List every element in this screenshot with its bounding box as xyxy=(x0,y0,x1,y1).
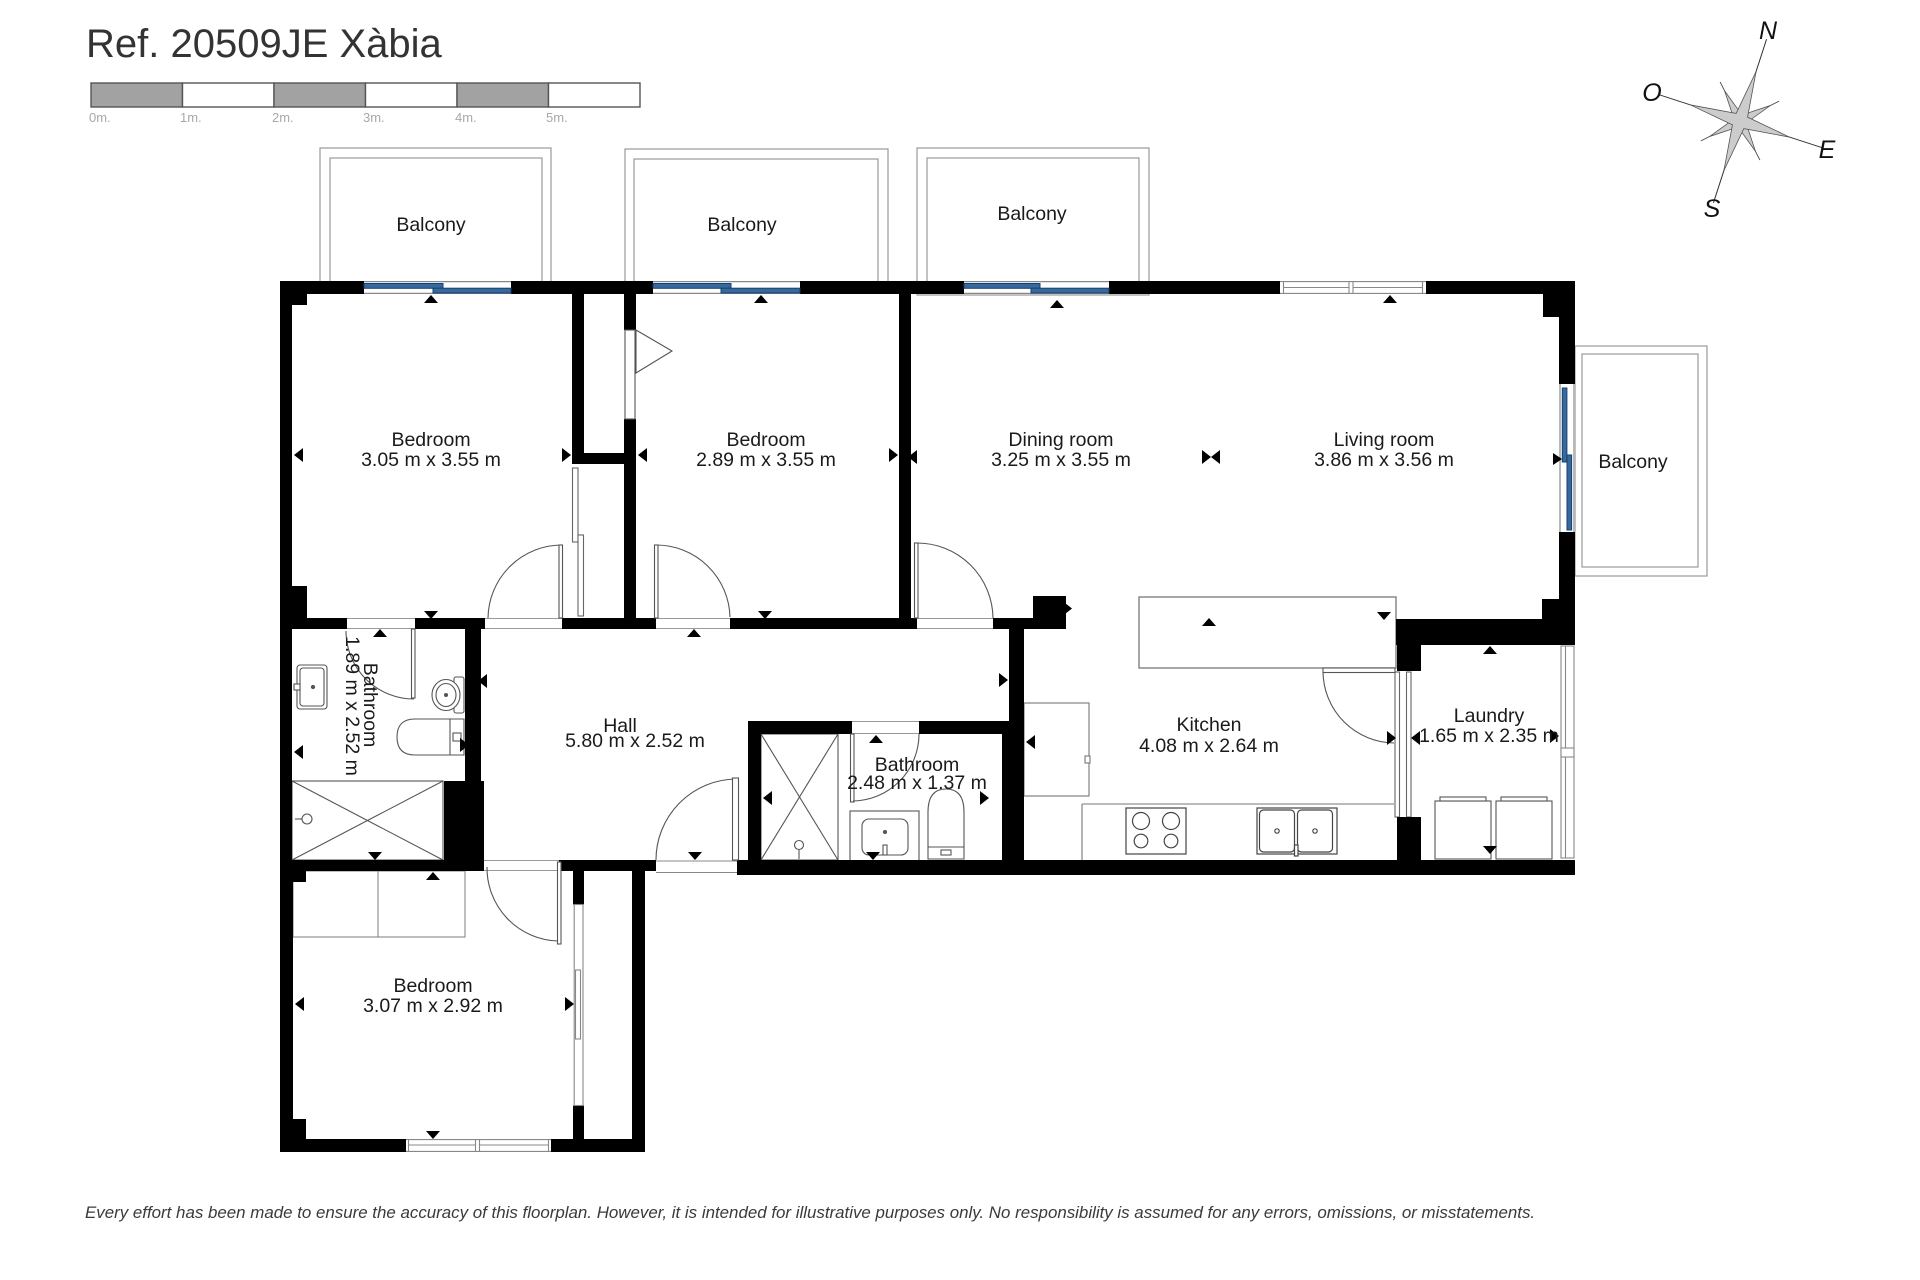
svg-text:E: E xyxy=(1819,136,1836,164)
svg-text:S: S xyxy=(1704,195,1721,223)
svg-text:Bedroom: Bedroom xyxy=(393,975,472,997)
svg-text:Bedroom: Bedroom xyxy=(726,429,805,451)
svg-text:Living room: Living room xyxy=(1334,429,1435,451)
svg-text:O: O xyxy=(1642,79,1661,107)
svg-text:3.86 m x 3.56 m: 3.86 m x 3.56 m xyxy=(1314,449,1454,471)
svg-text:1.89 m x 2.52 m: 1.89 m x 2.52 m xyxy=(341,636,363,776)
svg-text:1m.: 1m. xyxy=(180,110,202,125)
svg-text:N: N xyxy=(1759,17,1778,45)
svg-text:3.25 m x 3.55 m: 3.25 m x 3.55 m xyxy=(991,449,1131,471)
svg-text:5m.: 5m. xyxy=(546,110,568,125)
svg-text:2.89 m x 3.55 m: 2.89 m x 3.55 m xyxy=(696,449,836,471)
svg-text:5.80 m x 2.52 m: 5.80 m x 2.52 m xyxy=(565,730,705,752)
svg-text:Balcony: Balcony xyxy=(1598,451,1668,473)
svg-text:3m.: 3m. xyxy=(363,110,385,125)
svg-text:2m.: 2m. xyxy=(272,110,294,125)
svg-text:2.48 m x 1.37 m: 2.48 m x 1.37 m xyxy=(847,772,987,794)
svg-text:Ref. 20509JE Xàbia: Ref. 20509JE Xàbia xyxy=(86,22,443,66)
svg-text:Every effort has been made to: Every effort has been made to ensure the… xyxy=(85,1203,1535,1222)
svg-text:Balcony: Balcony xyxy=(997,203,1067,225)
svg-text:Balcony: Balcony xyxy=(707,214,777,236)
svg-text:Balcony: Balcony xyxy=(396,214,466,236)
svg-text:4m.: 4m. xyxy=(455,110,477,125)
svg-text:Laundry: Laundry xyxy=(1454,705,1525,727)
svg-text:3.05 m x 3.55 m: 3.05 m x 3.55 m xyxy=(361,449,501,471)
svg-text:Dining room: Dining room xyxy=(1008,429,1113,451)
svg-text:4.08 m x 2.64 m: 4.08 m x 2.64 m xyxy=(1139,735,1279,757)
svg-text:Kitchen: Kitchen xyxy=(1176,714,1241,736)
svg-text:1.65 m x 2.35 m: 1.65 m x 2.35 m xyxy=(1419,725,1559,747)
svg-text:3.07 m x 2.92 m: 3.07 m x 2.92 m xyxy=(363,995,503,1017)
svg-text:Bedroom: Bedroom xyxy=(391,429,470,451)
svg-text:0m.: 0m. xyxy=(89,110,111,125)
